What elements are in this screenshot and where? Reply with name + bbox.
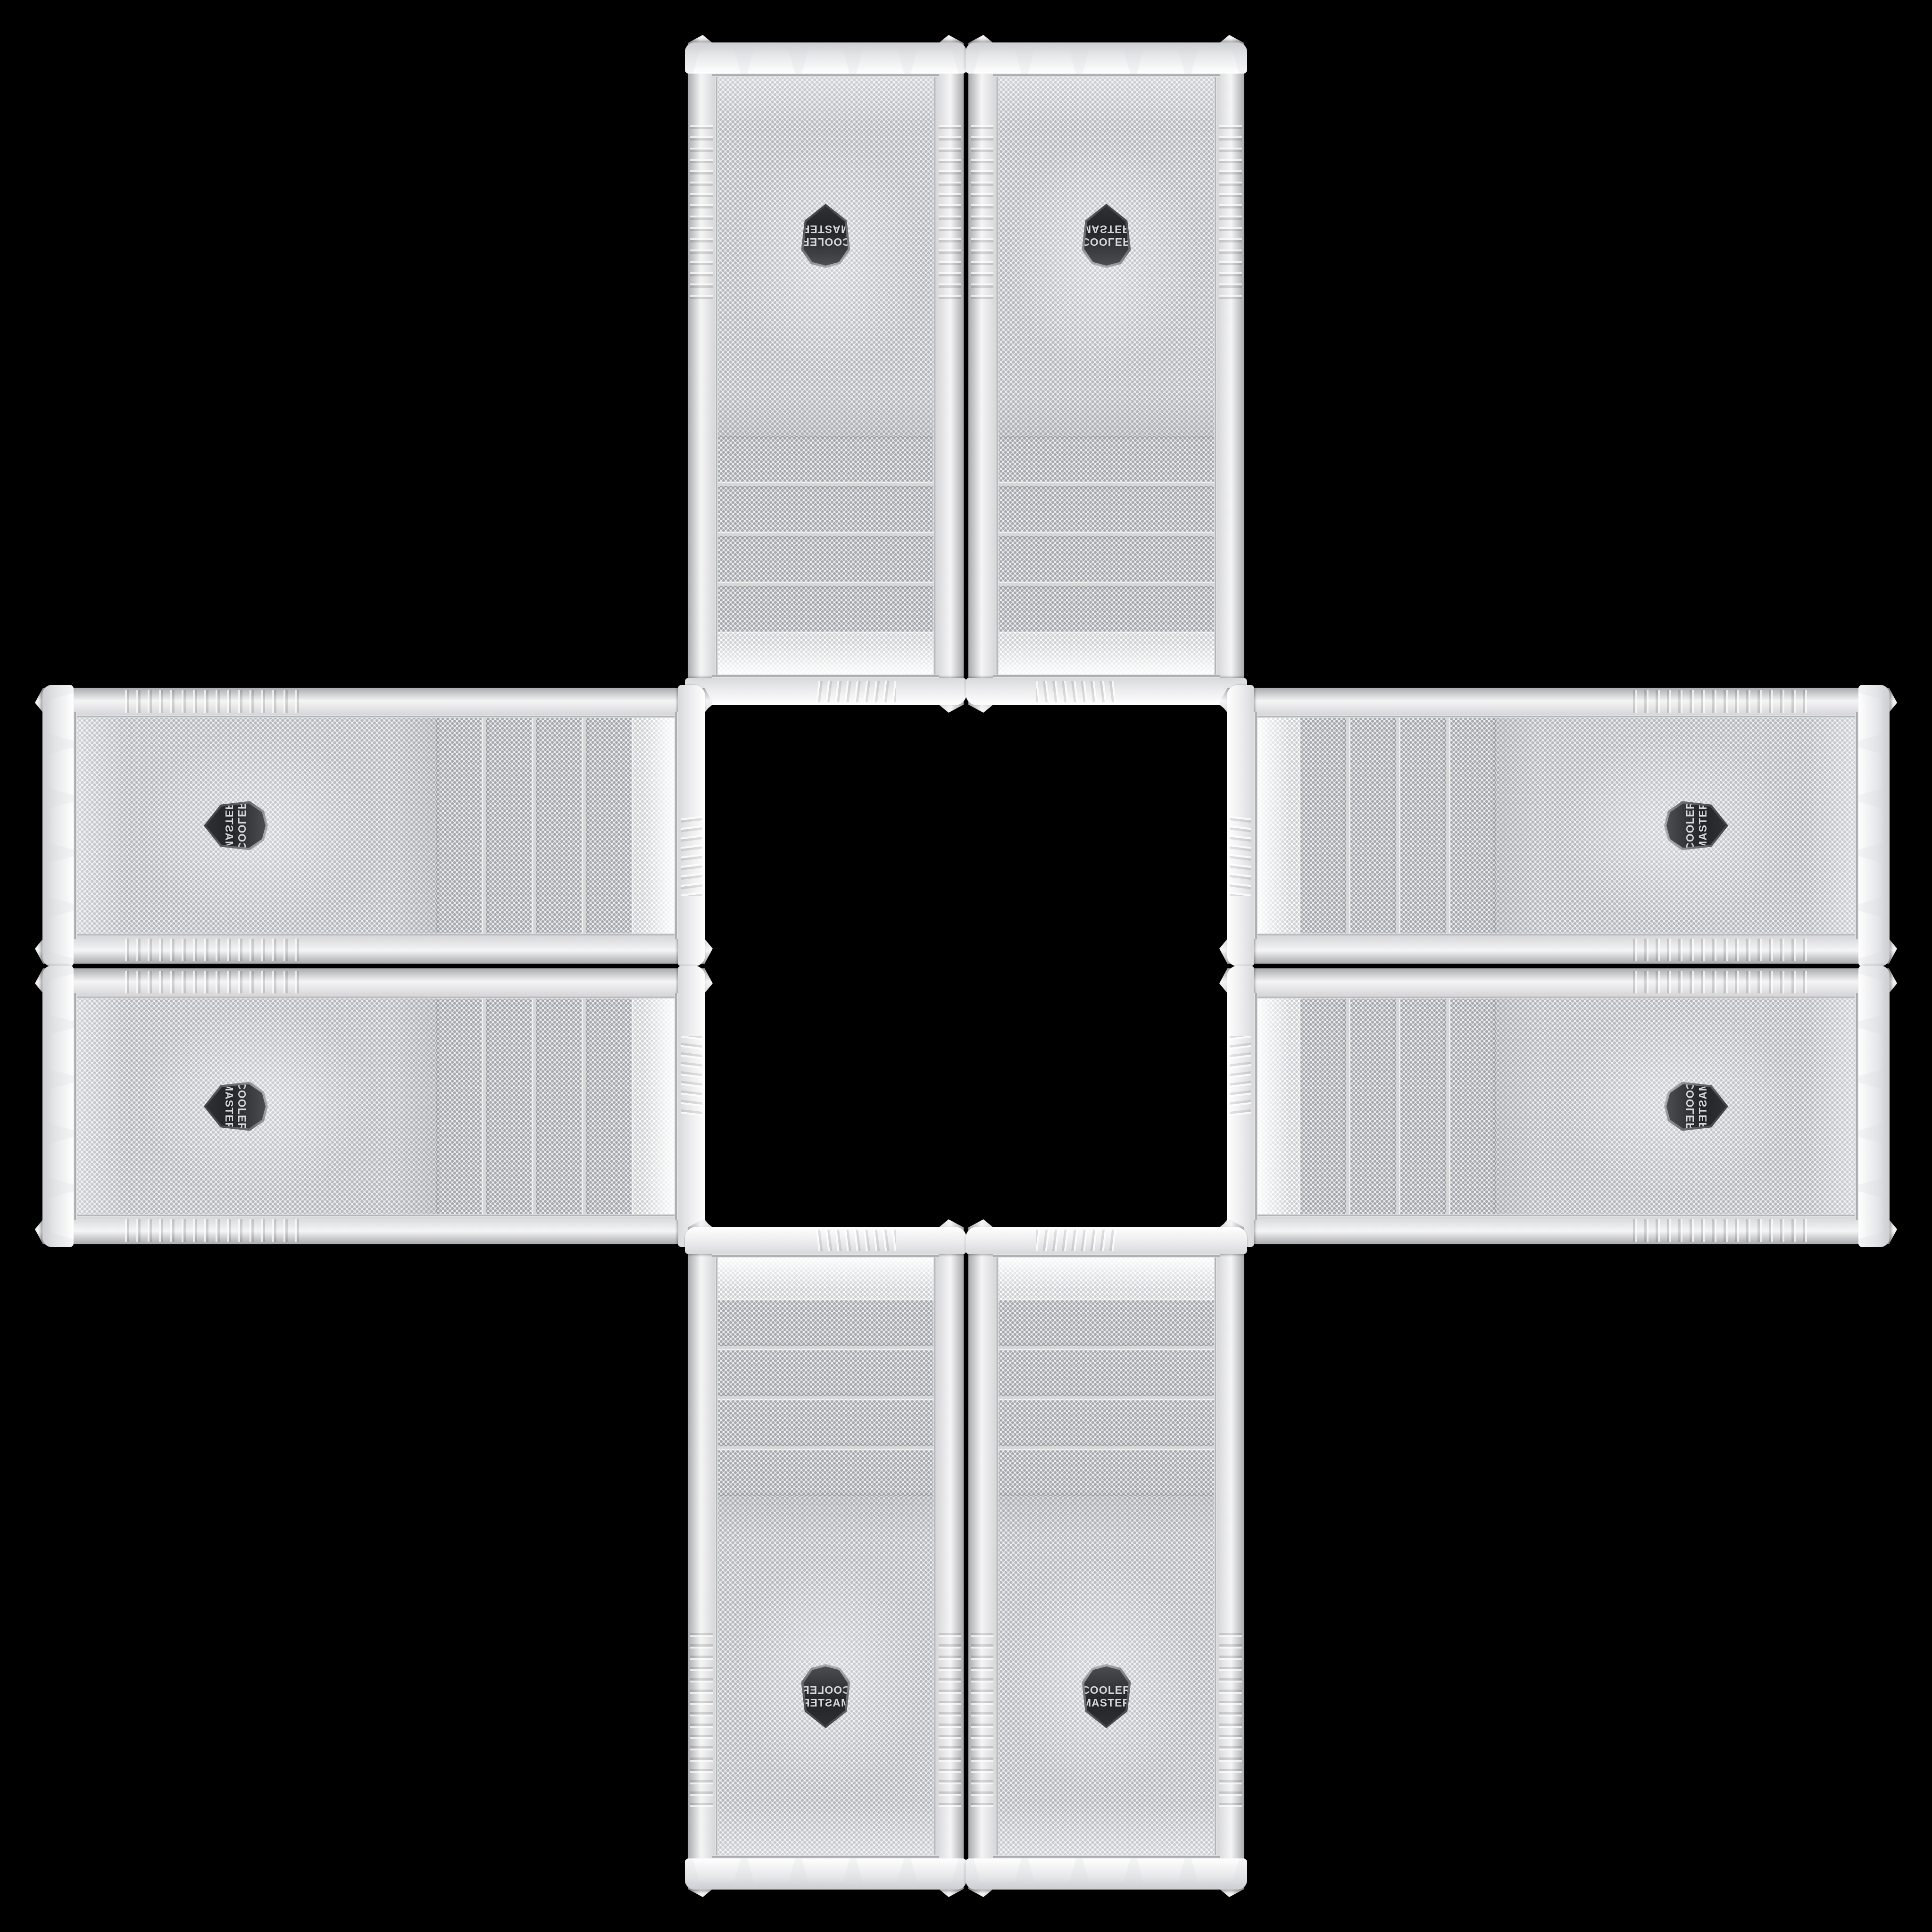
rail-grip-ribs <box>123 971 300 993</box>
top-cap-vent-ribs <box>815 681 896 702</box>
drive-bay-cover <box>999 1449 1214 1496</box>
chrome-trim-top <box>993 675 1220 678</box>
case-side-rail-right <box>1217 1219 1244 1897</box>
bumper-scallop <box>693 49 741 74</box>
drive-bay-cover <box>999 1399 1214 1446</box>
chrome-trim-top <box>675 993 678 1220</box>
bumper-scallop <box>1858 1028 1883 1075</box>
bumper-scallop <box>911 1858 958 1883</box>
chrome-trim-top <box>993 1254 1220 1257</box>
bumper-scallop <box>1083 1858 1130 1883</box>
chrome-trim-top <box>1254 712 1257 939</box>
case-top-cap <box>1227 685 1254 966</box>
bumper-scallop <box>1858 1191 1883 1239</box>
drive-bay-cover <box>486 999 533 1214</box>
badge-text-master: MASTER <box>224 801 236 850</box>
bumper-scallop <box>1028 49 1075 74</box>
badge-text-cooler: COOLER <box>1082 236 1131 249</box>
drive-bay-cover <box>1449 718 1496 933</box>
case-top-left: COOLER MASTER <box>688 42 964 705</box>
case-side-rail-left <box>1219 968 1897 996</box>
rail-grip-ribs <box>1633 939 1809 961</box>
drive-bay-cover <box>486 718 533 933</box>
rail-grip-ribs <box>123 939 300 961</box>
badge-text-cooler: COOLER <box>801 1684 850 1696</box>
case-top-right: COOLER MASTER <box>968 42 1244 705</box>
pc-case: COOLER MASTER <box>42 688 705 964</box>
chrome-trim-bottom <box>1855 712 1858 939</box>
bumper-scallop <box>49 1191 74 1239</box>
drive-bay-cover <box>718 536 933 583</box>
badge-text-cooler: COOLER <box>236 1082 249 1131</box>
pc-case: COOLER MASTER <box>42 968 705 1244</box>
bumper-scallop <box>1137 49 1184 74</box>
badge-text-cooler: COOLER <box>1684 801 1696 850</box>
case-top-cap <box>685 1227 966 1254</box>
drive-bay-cover <box>1349 718 1396 933</box>
bumper-scallop <box>1858 856 1883 904</box>
case-side-rail-right <box>688 1219 715 1897</box>
case-front-panel: COOLER MASTER <box>715 1257 936 1855</box>
chrome-trim-bottom <box>74 712 77 939</box>
case-front-panel: COOLER MASTER <box>1257 996 1855 1217</box>
badge-text-master: MASTER <box>1082 224 1131 236</box>
chrome-pillar-left <box>77 996 675 999</box>
badge-text-master: MASTER <box>1697 801 1709 850</box>
badge-text-master: MASTER <box>801 224 850 236</box>
case-bottom-bumper <box>685 42 966 74</box>
badge-text-cooler: COOLER <box>236 801 249 850</box>
drive-bay-cover <box>718 436 933 483</box>
drive-bay-cover <box>999 536 1214 583</box>
bumper-scallop <box>974 1858 1021 1883</box>
bumper-scallop <box>49 693 74 741</box>
drive-bay-cover <box>999 486 1214 533</box>
badge-text-master: MASTER <box>224 1082 236 1131</box>
case-bottom-right: COOLER MASTER <box>968 1227 1244 1890</box>
drive-bay-cover <box>1349 999 1396 1214</box>
chrome-pillar-right <box>715 77 718 675</box>
drive-bay-cover <box>436 718 483 933</box>
rail-grip-ribs <box>971 123 993 300</box>
drive-bay-cover <box>718 486 933 533</box>
case-side-rail-left <box>35 968 713 996</box>
chrome-pillar-right <box>1257 1214 1855 1217</box>
top-cap-vent-ribs <box>1230 1036 1251 1117</box>
case-bottom-bumper <box>685 1858 966 1890</box>
drive-bay-cover <box>718 586 933 633</box>
drive-bay-covers <box>718 436 933 633</box>
chrome-pillar-right <box>77 1214 675 1217</box>
chrome-pillar-right <box>1214 1257 1217 1855</box>
bumper-scallop <box>49 1028 74 1075</box>
chrome-pillar-left <box>996 77 999 675</box>
case-side-rail-right <box>1219 1217 1897 1244</box>
case-bottom-bumper <box>1858 966 1890 1247</box>
case-left-upper: COOLER MASTER <box>42 688 705 964</box>
case-top-cap <box>685 678 966 705</box>
top-mesh-curve <box>1257 999 1299 1214</box>
chrome-pillar-right <box>1214 77 1217 675</box>
rail-grip-ribs <box>690 1633 713 1809</box>
chrome-trim-bottom <box>712 74 939 77</box>
badge-text-master: MASTER <box>1082 1697 1131 1709</box>
rail-grip-ribs <box>1219 1633 1242 1809</box>
drive-bay-cover <box>999 586 1214 633</box>
top-cap-vent-ribs <box>1036 681 1117 702</box>
badge-text-cooler: COOLER <box>801 236 850 249</box>
case-right-upper: COOLER MASTER <box>1227 688 1890 964</box>
case-front-panel: COOLER MASTER <box>77 996 675 1217</box>
case-bottom-bumper <box>1858 685 1890 966</box>
drive-bay-cover <box>586 999 633 1214</box>
rail-grip-ribs <box>939 123 961 300</box>
drive-bay-cover <box>1399 718 1446 933</box>
rail-grip-ribs <box>123 1219 300 1242</box>
drive-bay-cover <box>999 1299 1214 1346</box>
bumper-scallop <box>1028 1858 1075 1883</box>
bumper-scallop <box>1137 1858 1184 1883</box>
top-cap-vent-ribs <box>681 815 702 896</box>
bumper-scallop <box>49 974 74 1021</box>
chrome-trim-top <box>675 712 678 939</box>
chrome-trim-bottom <box>993 1855 1220 1858</box>
drive-bay-covers <box>999 1299 1214 1496</box>
bumper-scallop <box>49 1137 74 1184</box>
case-side-rail-right <box>35 688 713 715</box>
top-mesh-curve <box>718 633 933 675</box>
case-front-panel: COOLER MASTER <box>1257 715 1855 936</box>
chrome-pillar-left <box>996 1257 999 1855</box>
bumper-scallop <box>1858 802 1883 849</box>
case-front-panel: COOLER MASTER <box>996 1257 1217 1855</box>
chrome-pillar-left <box>1257 996 1855 999</box>
chrome-trim-bottom <box>993 74 1220 77</box>
drive-bay-cover <box>718 1299 933 1346</box>
rail-grip-ribs <box>939 1633 961 1809</box>
top-cap-vent-ribs <box>1036 1230 1117 1251</box>
case-top-cap <box>678 685 705 966</box>
drive-bay-covers <box>1299 718 1496 933</box>
drive-bay-cover <box>718 1349 933 1396</box>
drive-bay-cover <box>1399 999 1446 1214</box>
drive-bay-covers <box>1299 999 1496 1214</box>
case-side-rail-left <box>1219 936 1897 964</box>
pc-case: COOLER MASTER <box>688 1227 964 1890</box>
case-side-rail-left <box>968 35 996 713</box>
chrome-trim-top <box>712 675 939 678</box>
bumper-scallop <box>911 49 958 74</box>
top-mesh-curve <box>999 633 1214 675</box>
case-top-cap <box>966 1227 1247 1254</box>
bumper-scallop <box>49 747 74 795</box>
drive-bay-covers <box>436 718 633 933</box>
case-side-rail-left <box>35 936 713 964</box>
top-mesh-curve <box>718 1257 933 1299</box>
bumper-scallop <box>1858 1083 1883 1130</box>
case-bottom-bumper <box>966 1858 1247 1890</box>
rail-grip-ribs <box>1633 690 1809 713</box>
chrome-trim-top <box>712 1254 939 1257</box>
case-top-cap <box>1227 966 1254 1247</box>
drive-bay-cover <box>1449 999 1496 1214</box>
chrome-trim-bottom <box>1855 993 1858 1220</box>
rail-grip-ribs <box>1219 123 1242 300</box>
top-mesh-curve <box>1257 718 1299 933</box>
case-bottom-bumper <box>42 966 74 1247</box>
case-front-panel: COOLER MASTER <box>996 77 1217 675</box>
case-bottom-left: COOLER MASTER <box>688 1227 964 1890</box>
drive-bay-cover <box>1299 718 1346 933</box>
chrome-pillar-left <box>933 1257 936 1855</box>
case-front-panel: COOLER MASTER <box>715 77 936 675</box>
drive-bay-covers <box>718 1299 933 1496</box>
top-cap-vent-ribs <box>681 1036 702 1117</box>
case-side-rail-right <box>688 35 715 713</box>
pc-case: COOLER MASTER <box>688 42 964 705</box>
pc-case: COOLER MASTER <box>968 42 1244 705</box>
badge-text-master: MASTER <box>1697 1082 1709 1131</box>
badge-text-cooler: COOLER <box>1684 1082 1696 1131</box>
chrome-pillar-right <box>1257 715 1855 718</box>
top-mesh-curve <box>633 999 675 1214</box>
rail-grip-ribs <box>690 123 713 300</box>
chrome-trim-bottom <box>712 1855 939 1858</box>
bumper-scallop <box>1858 911 1883 958</box>
bumper-scallop <box>1858 974 1883 1021</box>
bumper-scallop <box>747 1858 795 1883</box>
badge-text-master: MASTER <box>801 1697 850 1709</box>
pc-case: COOLER MASTER <box>1227 688 1890 964</box>
case-right-lower: COOLER MASTER <box>1227 968 1890 1244</box>
pc-case: COOLER MASTER <box>968 1227 1244 1890</box>
bumper-scallop <box>974 49 1021 74</box>
drive-bay-cover <box>536 999 583 1214</box>
case-top-cap <box>966 678 1247 705</box>
case-bottom-bumper <box>42 685 74 966</box>
drive-bay-cover <box>718 1449 933 1496</box>
drive-bay-cover <box>536 718 583 933</box>
bumper-scallop <box>1083 49 1130 74</box>
drive-bay-covers <box>436 999 633 1214</box>
pc-case: COOLER MASTER <box>1227 968 1890 1244</box>
bumper-scallop <box>747 49 795 74</box>
case-side-rail-right <box>1217 35 1244 713</box>
case-bottom-bumper <box>966 42 1247 74</box>
case-side-rail-left <box>936 35 964 713</box>
bumper-scallop <box>1858 747 1883 795</box>
bumper-scallop <box>49 911 74 958</box>
rail-grip-ribs <box>1633 971 1809 993</box>
badge-text-cooler: COOLER <box>1082 1684 1131 1696</box>
drive-bay-cover <box>436 999 483 1214</box>
top-mesh-curve <box>633 718 675 933</box>
chrome-pillar-right <box>77 715 675 718</box>
case-left-lower: COOLER MASTER <box>42 968 705 1244</box>
bumper-scallop <box>856 1858 904 1883</box>
top-cap-vent-ribs <box>1230 815 1251 896</box>
bumper-scallop <box>856 49 904 74</box>
bumper-scallop <box>802 49 849 74</box>
case-side-rail-right <box>1219 688 1897 715</box>
bumper-scallop <box>49 856 74 904</box>
drive-bay-covers <box>999 436 1214 633</box>
chrome-trim-bottom <box>74 993 77 1220</box>
bumper-scallop <box>1858 1137 1883 1184</box>
case-side-rail-left <box>936 1219 964 1897</box>
drive-bay-cover <box>999 1349 1214 1396</box>
top-mesh-curve <box>999 1257 1214 1299</box>
rail-grip-ribs <box>971 1633 993 1809</box>
bumper-scallop <box>1191 1858 1239 1883</box>
bumper-scallop <box>693 1858 741 1883</box>
top-cap-vent-ribs <box>815 1230 896 1251</box>
case-side-rail-right <box>35 1217 713 1244</box>
chrome-pillar-left <box>933 77 936 675</box>
case-side-rail-left <box>968 1219 996 1897</box>
drive-bay-cover <box>999 436 1214 483</box>
case-top-cap <box>678 966 705 1247</box>
chrome-pillar-left <box>1257 933 1855 936</box>
case-front-panel: COOLER MASTER <box>77 715 675 936</box>
drive-bay-cover <box>718 1399 933 1446</box>
bumper-scallop <box>1858 693 1883 741</box>
chrome-trim-top <box>1254 993 1257 1220</box>
bumper-scallop <box>49 1083 74 1130</box>
chrome-pillar-right <box>715 1257 718 1855</box>
rail-grip-ribs <box>123 690 300 713</box>
chrome-pillar-left <box>77 933 675 936</box>
product-collage: COOLER MASTER <box>0 0 1932 1932</box>
drive-bay-cover <box>1299 999 1346 1214</box>
bumper-scallop <box>1191 49 1239 74</box>
bumper-scallop <box>49 802 74 849</box>
drive-bay-cover <box>586 718 633 933</box>
bumper-scallop <box>802 1858 849 1883</box>
rail-grip-ribs <box>1633 1219 1809 1242</box>
